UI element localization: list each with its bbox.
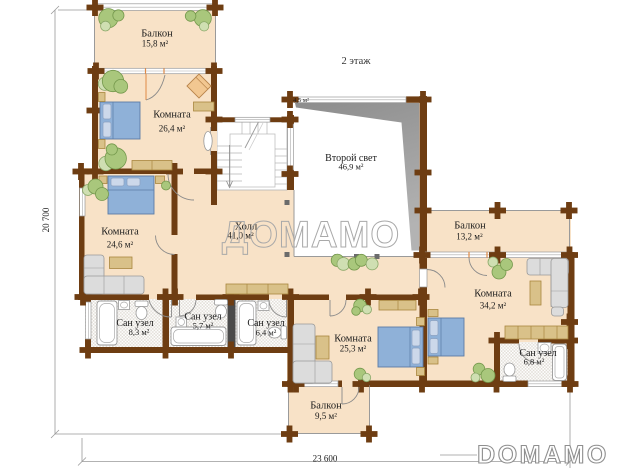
svg-text:25,3 м²: 25,3 м²: [340, 344, 367, 354]
svg-text:13,2 м²: 13,2 м²: [456, 232, 483, 242]
svg-text:46,9 м²: 46,9 м²: [339, 162, 364, 172]
svg-text:26,4 м²: 26,4 м²: [159, 124, 186, 134]
svg-text:Балкон: Балкон: [310, 401, 342, 412]
svg-text:DOMAMO: DOMAMO: [477, 441, 609, 469]
svg-text:20 700: 20 700: [41, 207, 51, 232]
svg-text:15,8 м²: 15,8 м²: [142, 39, 169, 49]
svg-text:24,6 м²: 24,6 м²: [107, 240, 134, 250]
svg-text:6,4 м²: 6,4 м²: [256, 328, 277, 338]
svg-text:Комната: Комната: [474, 289, 512, 300]
svg-text:34,2 м²: 34,2 м²: [480, 301, 507, 311]
svg-text:9,5 м²: 9,5 м²: [315, 411, 337, 421]
svg-text:Балкон: Балкон: [454, 221, 486, 232]
svg-text:6,8 м²: 6,8 м²: [524, 357, 545, 367]
svg-text:4,5 м²: 4,5 м²: [293, 97, 309, 104]
svg-text:Комната: Комната: [101, 227, 139, 238]
svg-text:23 600: 23 600: [313, 454, 338, 464]
svg-text:2 этаж: 2 этаж: [341, 56, 371, 67]
svg-text:Комната: Комната: [153, 110, 191, 121]
svg-text:8,3 м²: 8,3 м²: [129, 327, 150, 337]
svg-text:ДОМАМО: ДОМАМО: [222, 214, 400, 255]
svg-text:5,7 м²: 5,7 м²: [193, 321, 214, 331]
